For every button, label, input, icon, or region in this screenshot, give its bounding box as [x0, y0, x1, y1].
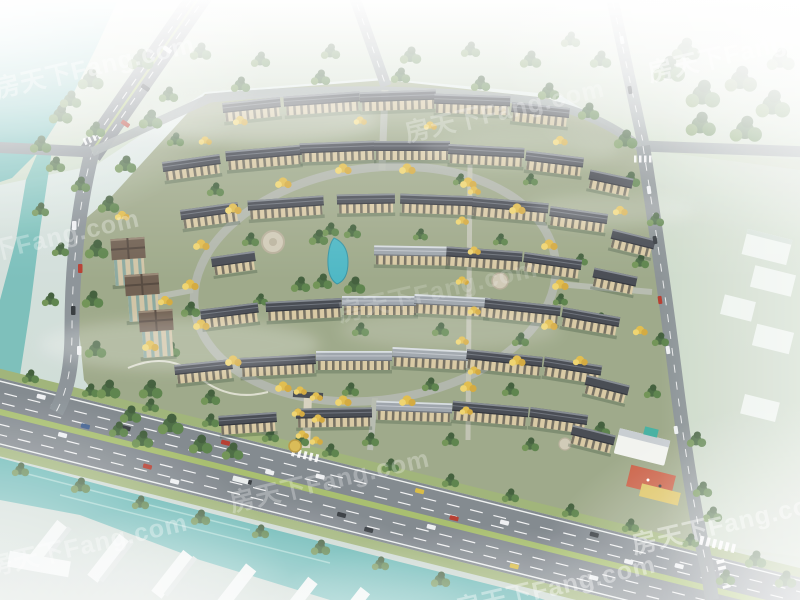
aerial-render-image: 房天下Fang.com 房天下Fang.com 房天下Fang.com 房天下F… [0, 0, 800, 600]
scene-svg: 房天下Fang.com 房天下Fang.com 房天下Fang.com 房天下F… [0, 0, 800, 600]
